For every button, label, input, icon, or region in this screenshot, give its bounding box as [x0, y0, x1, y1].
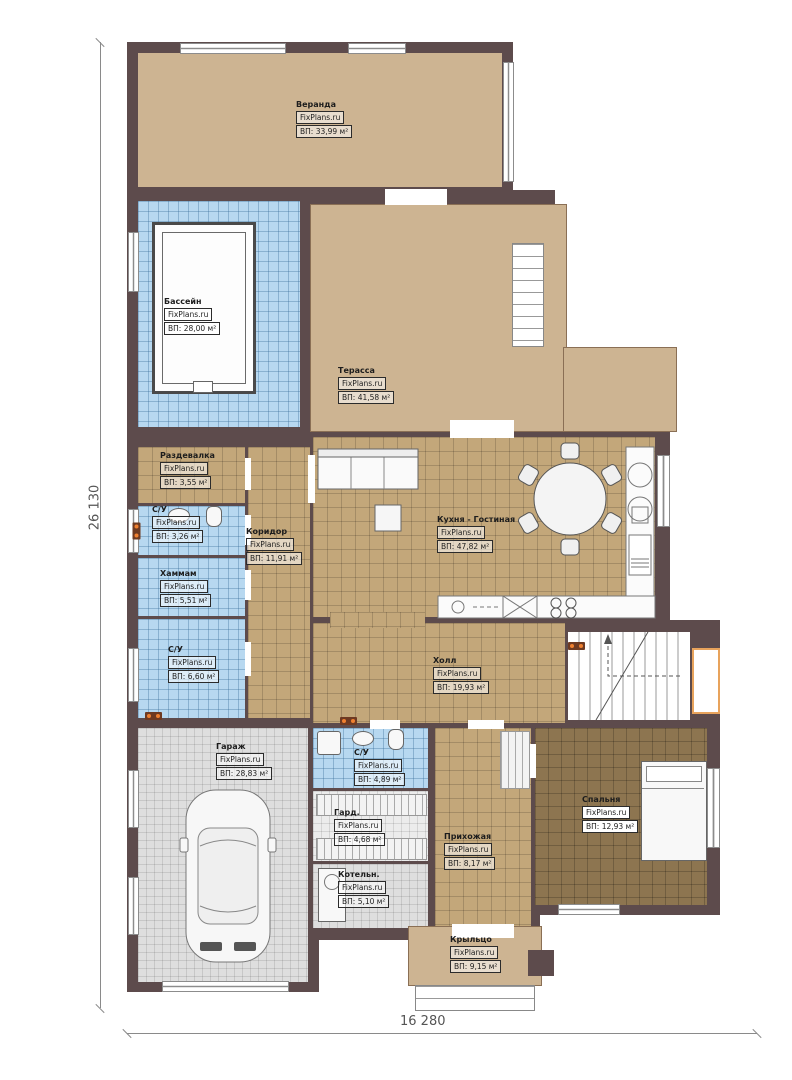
watermark: FixPlans.ru	[160, 580, 208, 593]
room-label-wc2: С/У FixPlans.ru ВП: 6,60 м²	[168, 645, 219, 683]
garage-door	[162, 981, 289, 992]
door-terrace-kitchen	[450, 420, 514, 438]
radiator-icon	[340, 717, 357, 725]
room-label-bedroom: Спальня FixPlans.ru ВП: 12,93 м²	[582, 795, 638, 833]
watermark: FixPlans.ru	[450, 946, 498, 959]
watermark: FixPlans.ru	[168, 656, 216, 669]
bed-blanket-line	[642, 788, 704, 789]
room-area: ВП: 3,55 м²	[160, 476, 211, 489]
watermark: FixPlans.ru	[338, 377, 386, 390]
room-label-kitchen: Кухня - Гостиная FixPlans.ru ВП: 47,82 м…	[437, 515, 515, 553]
room-area: ВП: 28,83 м²	[216, 767, 272, 780]
room-label-boiler: Котельн. FixPlans.ru ВП: 5,10 м²	[338, 870, 389, 908]
washer-icon	[317, 731, 341, 755]
room-label-terrace: Терасса FixPlans.ru ВП: 41,58 м²	[338, 366, 394, 404]
room-label-garage: Гараж FixPlans.ru ВП: 28,83 м²	[216, 742, 272, 780]
room-area: ВП: 41,58 м²	[338, 391, 394, 404]
door-changing	[245, 458, 251, 490]
room-terrace-floor-ext	[563, 347, 677, 432]
toilet-icon	[206, 506, 222, 527]
room-label-wardrobe: Гард. FixPlans.ru ВП: 4,68 м²	[334, 808, 385, 846]
room-area: ВП: 33,99 м²	[296, 125, 352, 138]
terrace-exterior-stairs	[512, 243, 544, 347]
room-area: ВП: 6,60 м²	[168, 670, 219, 683]
window	[128, 770, 139, 828]
watermark: FixPlans.ru	[334, 819, 382, 832]
window	[128, 648, 139, 702]
window	[348, 43, 406, 54]
car-icon	[178, 786, 278, 966]
bed-icon	[641, 761, 707, 861]
window	[503, 62, 514, 182]
watermark: FixPlans.ru	[433, 667, 481, 680]
room-label-hammam: Хаммам FixPlans.ru ВП: 5,51 м²	[160, 569, 211, 607]
window	[558, 904, 620, 915]
room-area: ВП: 5,10 м²	[338, 895, 389, 908]
toilet-icon	[388, 729, 404, 750]
radiator-icon	[145, 712, 162, 720]
room-area: ВП: 4,89 м²	[354, 773, 405, 786]
window	[180, 43, 286, 54]
watermark: FixPlans.ru	[582, 806, 630, 819]
room-label-entry: Прихожая FixPlans.ru ВП: 8,17 м²	[444, 832, 495, 870]
watermark: FixPlans.ru	[296, 111, 344, 124]
room-label-hall: Холл FixPlans.ru ВП: 19,93 м²	[433, 656, 489, 694]
room-label-changing: Раздевалка FixPlans.ru ВП: 3,55 м²	[160, 451, 215, 489]
room-area: ВП: 9,15 м²	[450, 960, 501, 973]
watermark: FixPlans.ru	[216, 753, 264, 766]
door-wc3	[370, 720, 400, 729]
room-label-wc1: С/У FixPlans.ru ВП: 3,26 м²	[152, 505, 203, 543]
room-area: ВП: 12,93 м²	[582, 820, 638, 833]
pool-ladder-icon	[193, 381, 213, 393]
window	[128, 232, 139, 292]
room-corridor-floor	[248, 447, 310, 718]
dimension-line-bottom	[127, 1033, 757, 1034]
floor-plan: 26 130 16 280	[0, 0, 792, 1080]
watermark: FixPlans.ru	[160, 462, 208, 475]
window	[128, 877, 139, 935]
sink-icon	[352, 731, 374, 746]
radiator-icon	[133, 523, 141, 540]
watermark: FixPlans.ru	[338, 881, 386, 894]
staircase	[568, 632, 690, 720]
watermark: FixPlans.ru	[444, 843, 492, 856]
room-label-corridor: Коридор FixPlans.ru ВП: 11,91 м²	[246, 527, 302, 565]
watermark: FixPlans.ru	[152, 516, 200, 529]
porch-steps	[415, 985, 535, 1011]
stairs-window-bay	[692, 648, 720, 714]
entry-closet	[500, 731, 530, 789]
dimension-bottom-value: 16 280	[400, 1014, 446, 1029]
bed-pillow	[646, 766, 702, 782]
dimension-left-value: 26 130	[87, 485, 102, 531]
room-area: ВП: 19,93 м²	[433, 681, 489, 694]
door-entry-hall	[468, 720, 504, 729]
door-wc2	[245, 642, 251, 676]
room-area: ВП: 28,00 м²	[164, 322, 220, 335]
window	[707, 768, 720, 848]
room-area: ВП: 5,51 м²	[160, 594, 211, 607]
room-area: ВП: 47,82 м²	[437, 540, 493, 553]
room-label-porch: Крыльцо FixPlans.ru ВП: 9,15 м²	[450, 935, 501, 973]
window	[657, 455, 670, 527]
radiator-icon	[568, 642, 585, 650]
room-label-wc3: С/У FixPlans.ru ВП: 4,89 м²	[354, 748, 405, 786]
room-area: ВП: 3,26 м²	[152, 530, 203, 543]
watermark: FixPlans.ru	[164, 308, 212, 321]
room-label-veranda: Веранда FixPlans.ru ВП: 33,99 м²	[296, 100, 352, 138]
porch-column	[528, 950, 554, 976]
room-area: ВП: 4,68 м²	[334, 833, 385, 846]
door-veranda-terrace	[385, 189, 447, 205]
room-area: ВП: 8,17 м²	[444, 857, 495, 870]
room-area: ВП: 11,91 м²	[246, 552, 302, 565]
watermark: FixPlans.ru	[437, 526, 485, 539]
room-label-pool: Бассейн FixPlans.ru ВП: 28,00 м²	[164, 297, 220, 335]
door-hammam	[245, 570, 251, 600]
watermark: FixPlans.ru	[246, 538, 294, 551]
watermark: FixPlans.ru	[354, 759, 402, 772]
